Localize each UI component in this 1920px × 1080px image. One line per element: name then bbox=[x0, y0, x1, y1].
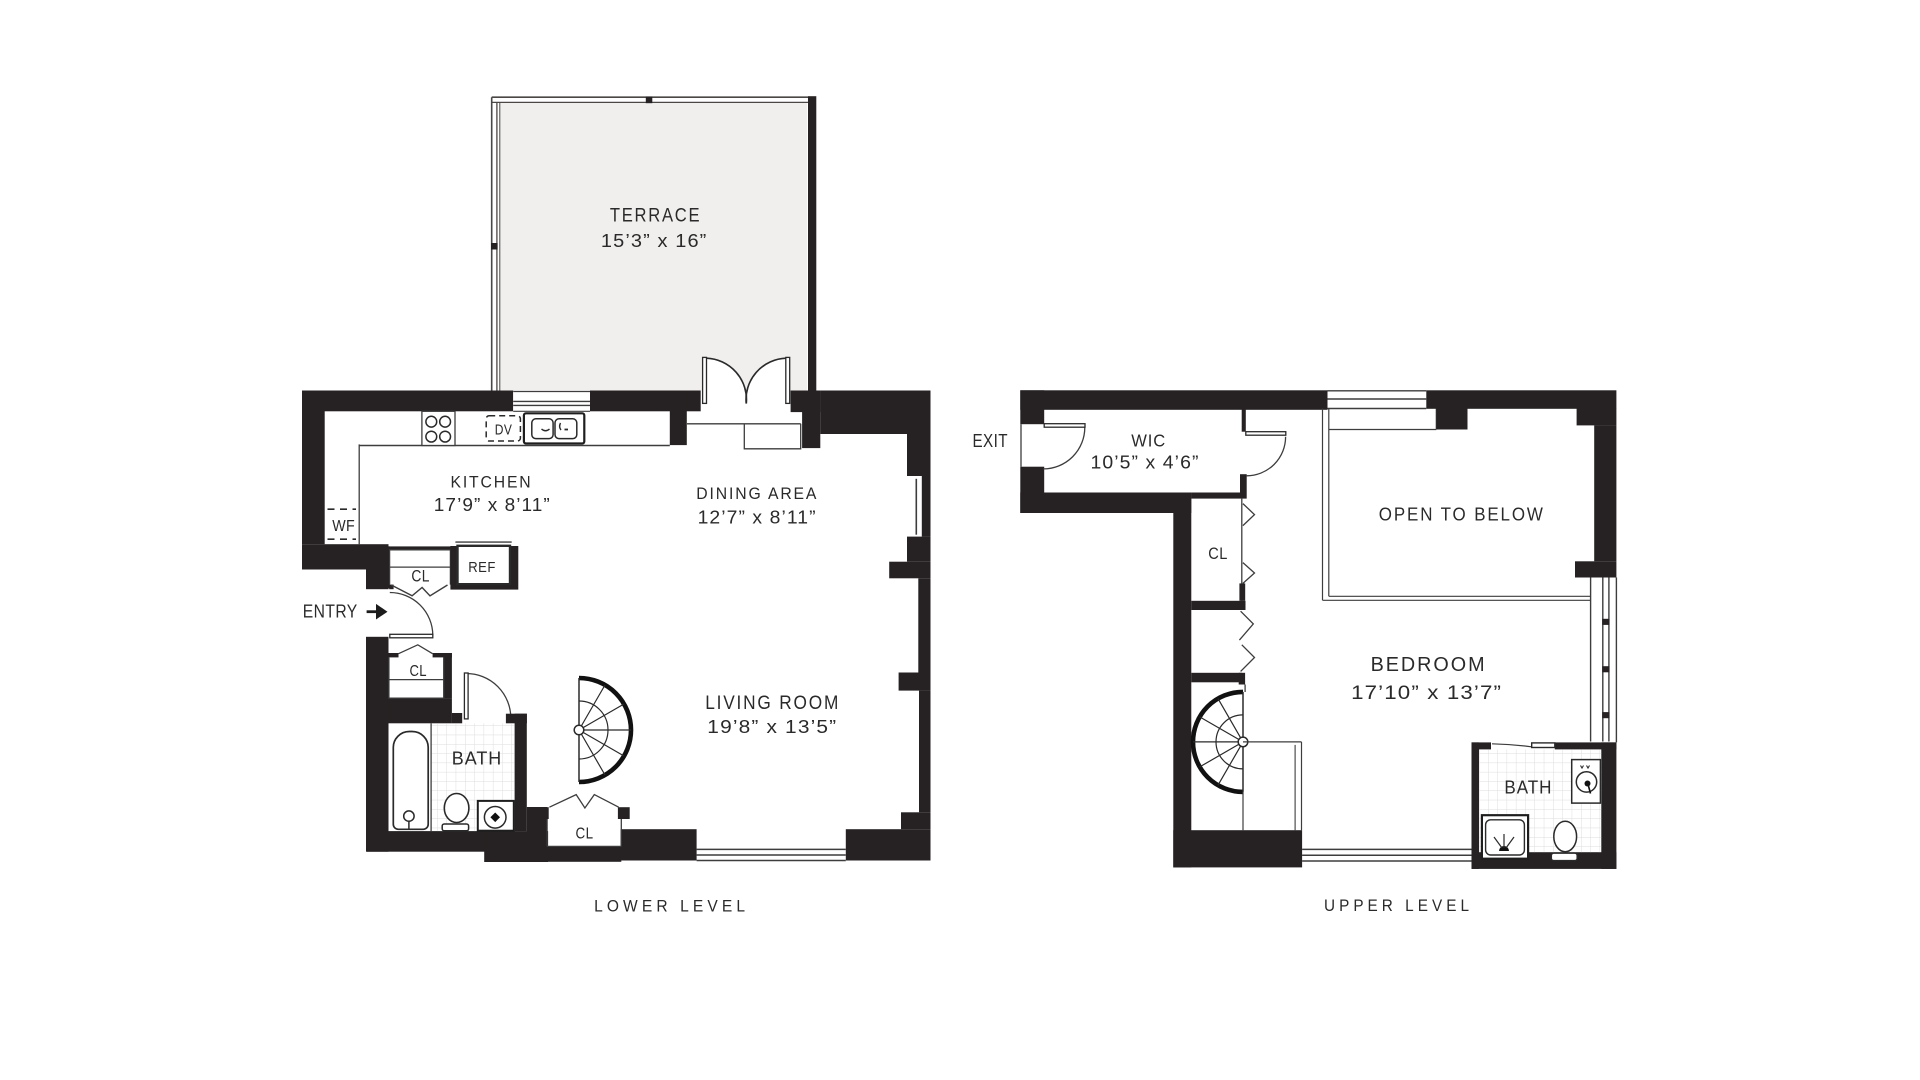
svg-text:15’3” x 16”: 15’3” x 16” bbox=[601, 231, 708, 251]
svg-text:19’8” x 13’5”: 19’8” x 13’5” bbox=[707, 717, 837, 737]
svg-text:ENTRY: ENTRY bbox=[303, 602, 358, 622]
svg-text:WF: WF bbox=[332, 518, 355, 535]
svg-text:EXIT: EXIT bbox=[972, 431, 1008, 451]
svg-text:BATH: BATH bbox=[452, 748, 503, 768]
svg-text:12’7” x 8’11”: 12’7” x 8’11” bbox=[698, 507, 817, 527]
svg-text:17’10” x 13’7”: 17’10” x 13’7” bbox=[1351, 682, 1502, 704]
svg-text:WIC: WIC bbox=[1131, 431, 1166, 451]
svg-text:LIVING ROOM: LIVING ROOM bbox=[705, 693, 840, 714]
svg-text:10’5” x 4’6”: 10’5” x 4’6” bbox=[1091, 452, 1200, 472]
svg-text:REF: REF bbox=[468, 560, 496, 576]
svg-text:TERRACE: TERRACE bbox=[610, 206, 702, 227]
svg-text:KITCHEN: KITCHEN bbox=[451, 473, 533, 492]
svg-text:BATH: BATH bbox=[1504, 777, 1552, 797]
svg-text:OPEN TO BELOW: OPEN TO BELOW bbox=[1379, 505, 1545, 525]
svg-text:CL: CL bbox=[576, 826, 594, 843]
svg-text:DINING AREA: DINING AREA bbox=[696, 484, 818, 503]
svg-text:BEDROOM: BEDROOM bbox=[1371, 654, 1487, 676]
svg-text:CL: CL bbox=[411, 568, 430, 586]
svg-text:CL: CL bbox=[1208, 544, 1228, 563]
svg-text:LOWER LEVEL: LOWER LEVEL bbox=[594, 896, 749, 915]
svg-text:UPPER LEVEL: UPPER LEVEL bbox=[1324, 896, 1473, 915]
svg-text:DV: DV bbox=[495, 422, 513, 439]
svg-text:17’9” x 8’11”: 17’9” x 8’11” bbox=[434, 495, 551, 515]
svg-text:CL: CL bbox=[409, 663, 427, 680]
